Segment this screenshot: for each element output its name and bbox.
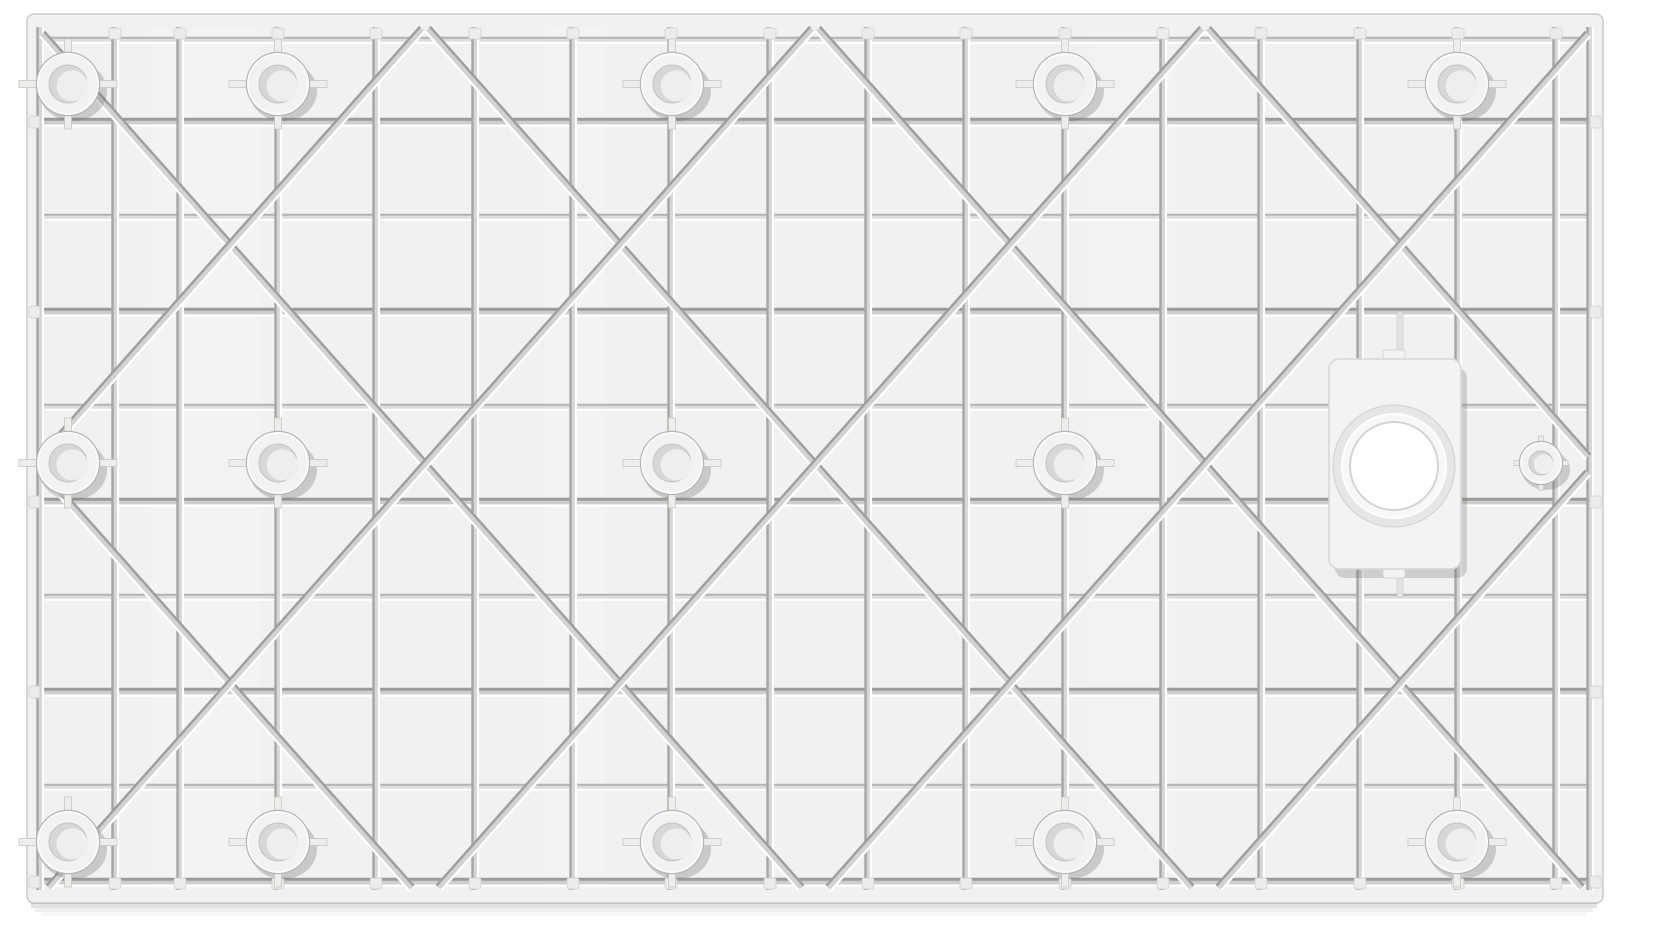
rim-notch (370, 878, 382, 889)
rim-notch (469, 878, 481, 889)
rim-notch (764, 28, 776, 39)
rim-notch (567, 28, 579, 39)
rim-notch (764, 878, 776, 889)
rim-notch (29, 496, 40, 508)
rim-notch (109, 28, 121, 39)
drain-hole (1350, 422, 1438, 510)
rim-notch (960, 878, 972, 889)
rim-notch (272, 28, 284, 39)
rim-notch (1157, 878, 1169, 889)
rim-notch (1590, 116, 1601, 128)
rim-notch (1590, 496, 1601, 508)
rim-notch (29, 876, 40, 888)
rim-notch (567, 878, 579, 889)
rim-notch (1590, 686, 1601, 698)
rim-notch (174, 878, 186, 889)
rim-notch (1157, 28, 1169, 39)
rim-notch (370, 28, 382, 39)
rim-notch (1059, 28, 1071, 39)
rim-notch (29, 116, 40, 128)
rim-notch (1255, 878, 1267, 889)
rim-notch (1354, 878, 1366, 889)
rim-notch (1550, 28, 1562, 39)
rim-notch (1354, 28, 1366, 39)
rim-notch (29, 306, 40, 318)
photo-canvas: White molded shower tray underside with … (0, 0, 1654, 947)
rim-notch (174, 28, 186, 39)
rim-notch (1255, 28, 1267, 39)
rim-notch (1590, 876, 1601, 888)
rim-notch (29, 686, 40, 698)
rim-notch (665, 28, 677, 39)
rim-notch (469, 28, 481, 39)
rim-notch (109, 878, 121, 889)
rim-notch (1550, 878, 1562, 889)
panel-drop-shadow (31, 903, 1597, 916)
rim-notch (1452, 28, 1464, 39)
rim-notch (960, 28, 972, 39)
shower-tray-underside-photo (0, 0, 1654, 947)
rim-notch (862, 878, 874, 889)
rim-notch (1590, 306, 1601, 318)
rim-notch (862, 28, 874, 39)
